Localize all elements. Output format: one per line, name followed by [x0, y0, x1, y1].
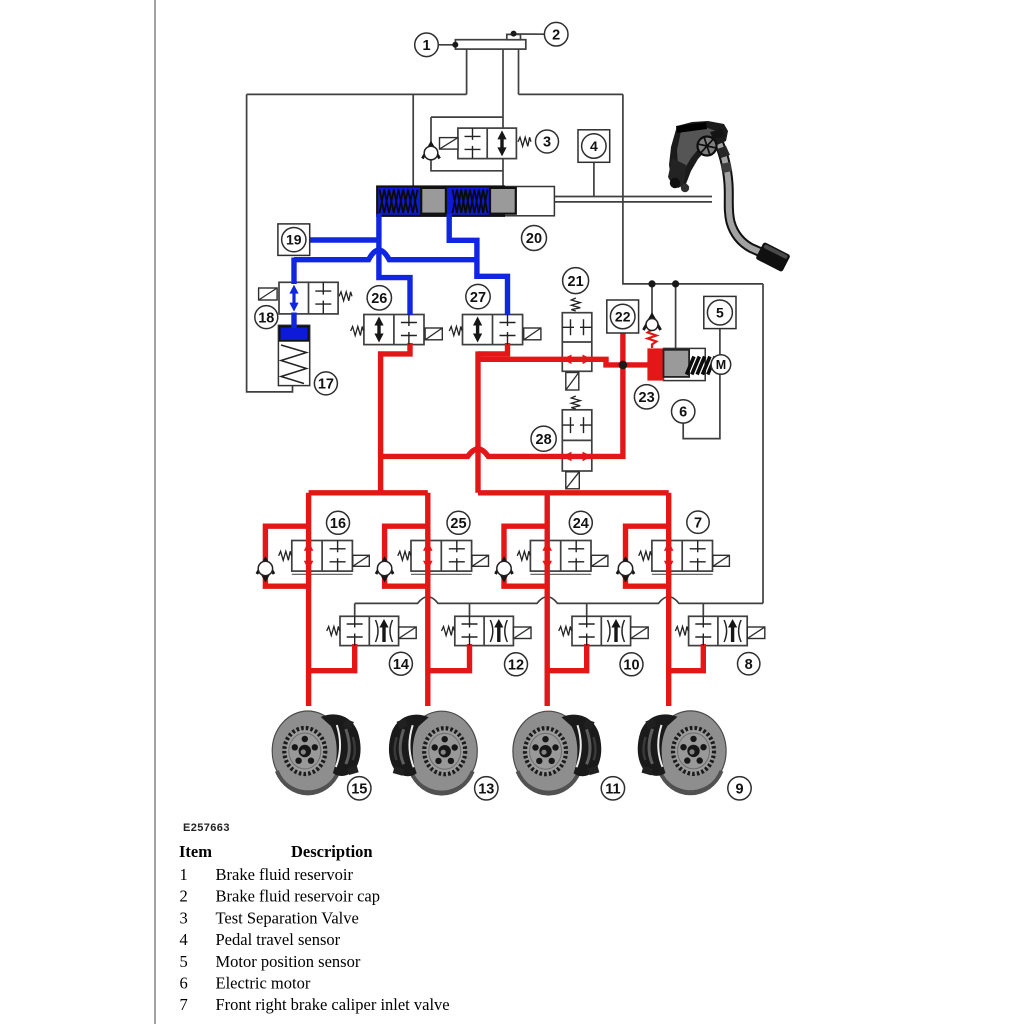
svg-text:1: 1: [180, 865, 188, 884]
svg-text:13: 13: [478, 782, 494, 798]
svg-text:Item: Item: [179, 842, 212, 861]
svg-text:18: 18: [258, 310, 274, 326]
svg-text:E257663: E257663: [183, 822, 230, 834]
svg-text:15: 15: [351, 782, 367, 798]
svg-text:14: 14: [393, 657, 409, 673]
svg-text:4: 4: [180, 930, 188, 949]
svg-text:Front right brake caliper inle: Front right brake caliper inlet valve: [216, 995, 450, 1014]
svg-text:20: 20: [526, 231, 542, 247]
svg-text:3: 3: [543, 135, 551, 151]
svg-text:17: 17: [318, 377, 334, 393]
svg-text:9: 9: [735, 782, 743, 798]
svg-text:5: 5: [180, 952, 188, 971]
svg-text:7: 7: [180, 995, 188, 1014]
svg-text:Description: Description: [291, 842, 373, 861]
svg-text:1: 1: [422, 38, 430, 54]
svg-text:Electric motor: Electric motor: [216, 974, 311, 993]
svg-text:25: 25: [450, 516, 466, 532]
svg-text:4: 4: [590, 138, 598, 154]
svg-text:21: 21: [568, 274, 584, 290]
svg-text:22: 22: [615, 309, 631, 325]
svg-text:28: 28: [536, 432, 552, 448]
svg-text:24: 24: [573, 516, 589, 532]
svg-text:Brake fluid reservoir: Brake fluid reservoir: [216, 865, 354, 884]
svg-text:Brake fluid reservoir cap: Brake fluid reservoir cap: [216, 887, 380, 906]
svg-text:Motor position sensor: Motor position sensor: [216, 952, 361, 971]
svg-text:6: 6: [180, 974, 188, 993]
svg-text:19: 19: [286, 232, 302, 248]
svg-text:8: 8: [745, 657, 753, 673]
svg-text:3: 3: [180, 908, 188, 927]
svg-text:7: 7: [694, 515, 702, 531]
svg-text:27: 27: [470, 290, 486, 306]
svg-text:6: 6: [679, 405, 687, 421]
svg-text:10: 10: [623, 658, 639, 674]
svg-text:23: 23: [639, 390, 655, 406]
svg-text:16: 16: [330, 516, 346, 532]
svg-text:2: 2: [552, 27, 560, 43]
svg-text:Test Separation Valve: Test Separation Valve: [216, 908, 359, 927]
svg-text:12: 12: [508, 658, 524, 674]
svg-text:11: 11: [605, 782, 620, 798]
svg-text:2: 2: [180, 887, 188, 906]
svg-text:M: M: [716, 358, 726, 372]
svg-text:Pedal travel sensor: Pedal travel sensor: [216, 930, 341, 949]
svg-text:5: 5: [716, 305, 724, 321]
svg-text:26: 26: [371, 291, 387, 307]
